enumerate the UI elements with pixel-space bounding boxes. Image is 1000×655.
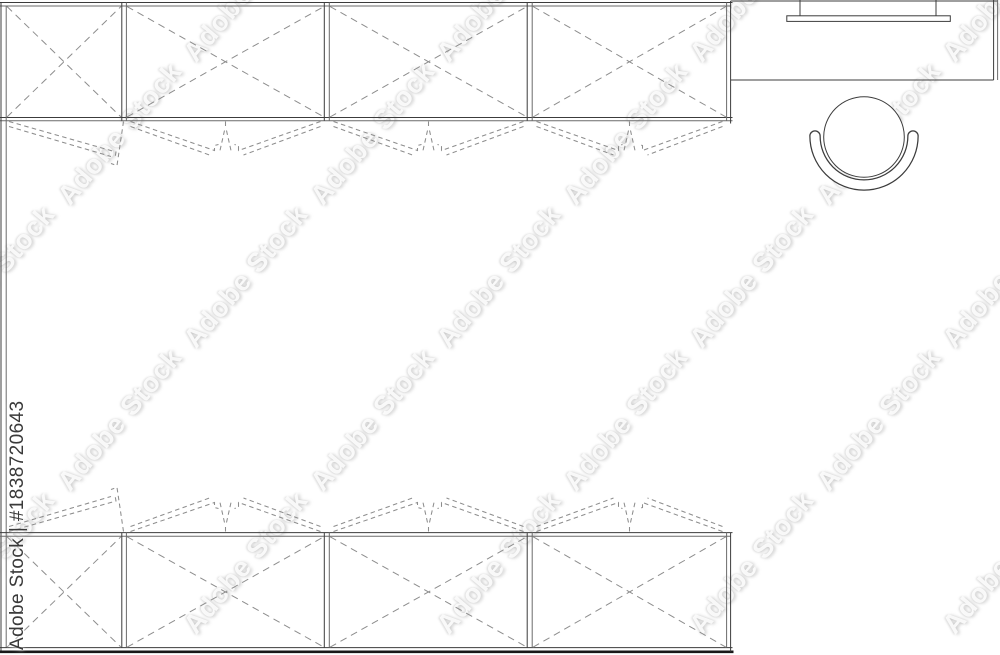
cabinet-x-braces-top	[7, 7, 726, 118]
wardrobe-row-bottom	[0, 488, 734, 652]
office-chair	[815, 97, 913, 185]
watermark-id-label: Adobe Stock | #1838720643	[7, 401, 29, 650]
desk	[731, 0, 998, 80]
cabinet-x-braces-bottom	[7, 537, 726, 648]
floor-plan-stock-image: Adobe StockAdobe StockAdobe StockAdobe S…	[0, 0, 1000, 655]
chair-seat	[824, 97, 905, 178]
wardrobe-row-top	[0, 1, 733, 652]
floor-plan-drawing	[0, 0, 1000, 655]
door-swings-bottom	[9, 488, 723, 532]
monitor	[787, 0, 951, 21]
door-swings-top	[9, 122, 723, 166]
